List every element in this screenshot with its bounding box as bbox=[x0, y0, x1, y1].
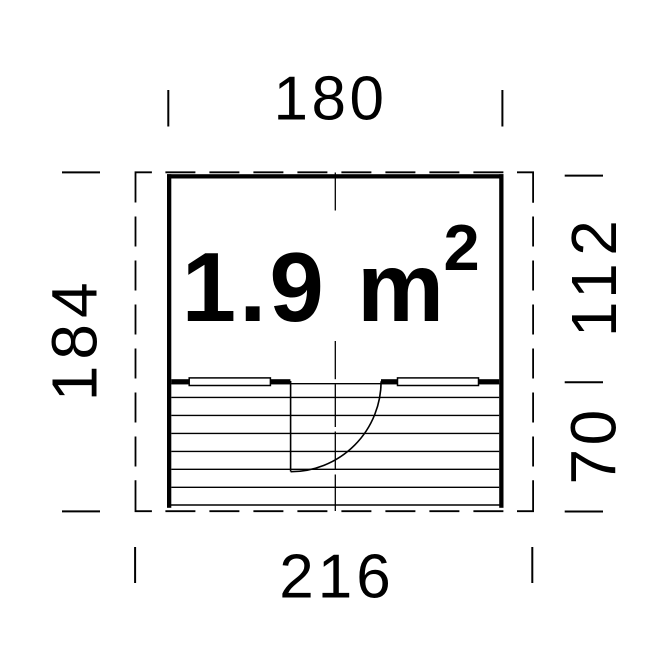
svg-text:2: 2 bbox=[444, 211, 480, 284]
svg-text:112: 112 bbox=[558, 213, 630, 338]
svg-text:1.9 m: 1.9 m bbox=[182, 232, 448, 342]
svg-text:184: 184 bbox=[39, 276, 111, 401]
svg-text:216: 216 bbox=[279, 542, 394, 611]
svg-text:70: 70 bbox=[558, 406, 630, 484]
svg-text:180: 180 bbox=[274, 65, 388, 134]
